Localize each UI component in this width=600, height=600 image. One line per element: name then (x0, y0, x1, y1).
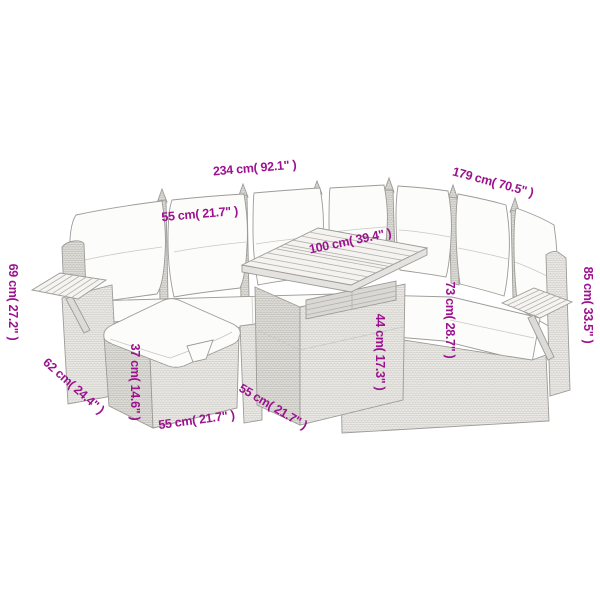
dim-label: 85 cm( 33.5" ) (581, 267, 595, 344)
dim-label: 234 cm( 92.1" ) (213, 158, 297, 179)
dim-label: 37 cm( 14.6" ) (128, 344, 142, 421)
diagram-canvas: 234 cm( 92.1" )179 cm( 70.5" )55 cm( 21.… (0, 0, 600, 600)
dim-label: 73 cm( 28.7" ) (443, 282, 457, 359)
dim-label: 44 cm( 17.3" ) (373, 314, 387, 391)
dim-label: 69 cm( 27.2" ) (6, 264, 20, 341)
dim-label: 179 cm( 70.5" ) (451, 165, 535, 200)
product-dimension-diagram: 234 cm( 92.1" )179 cm( 70.5" )55 cm( 21.… (0, 0, 600, 600)
